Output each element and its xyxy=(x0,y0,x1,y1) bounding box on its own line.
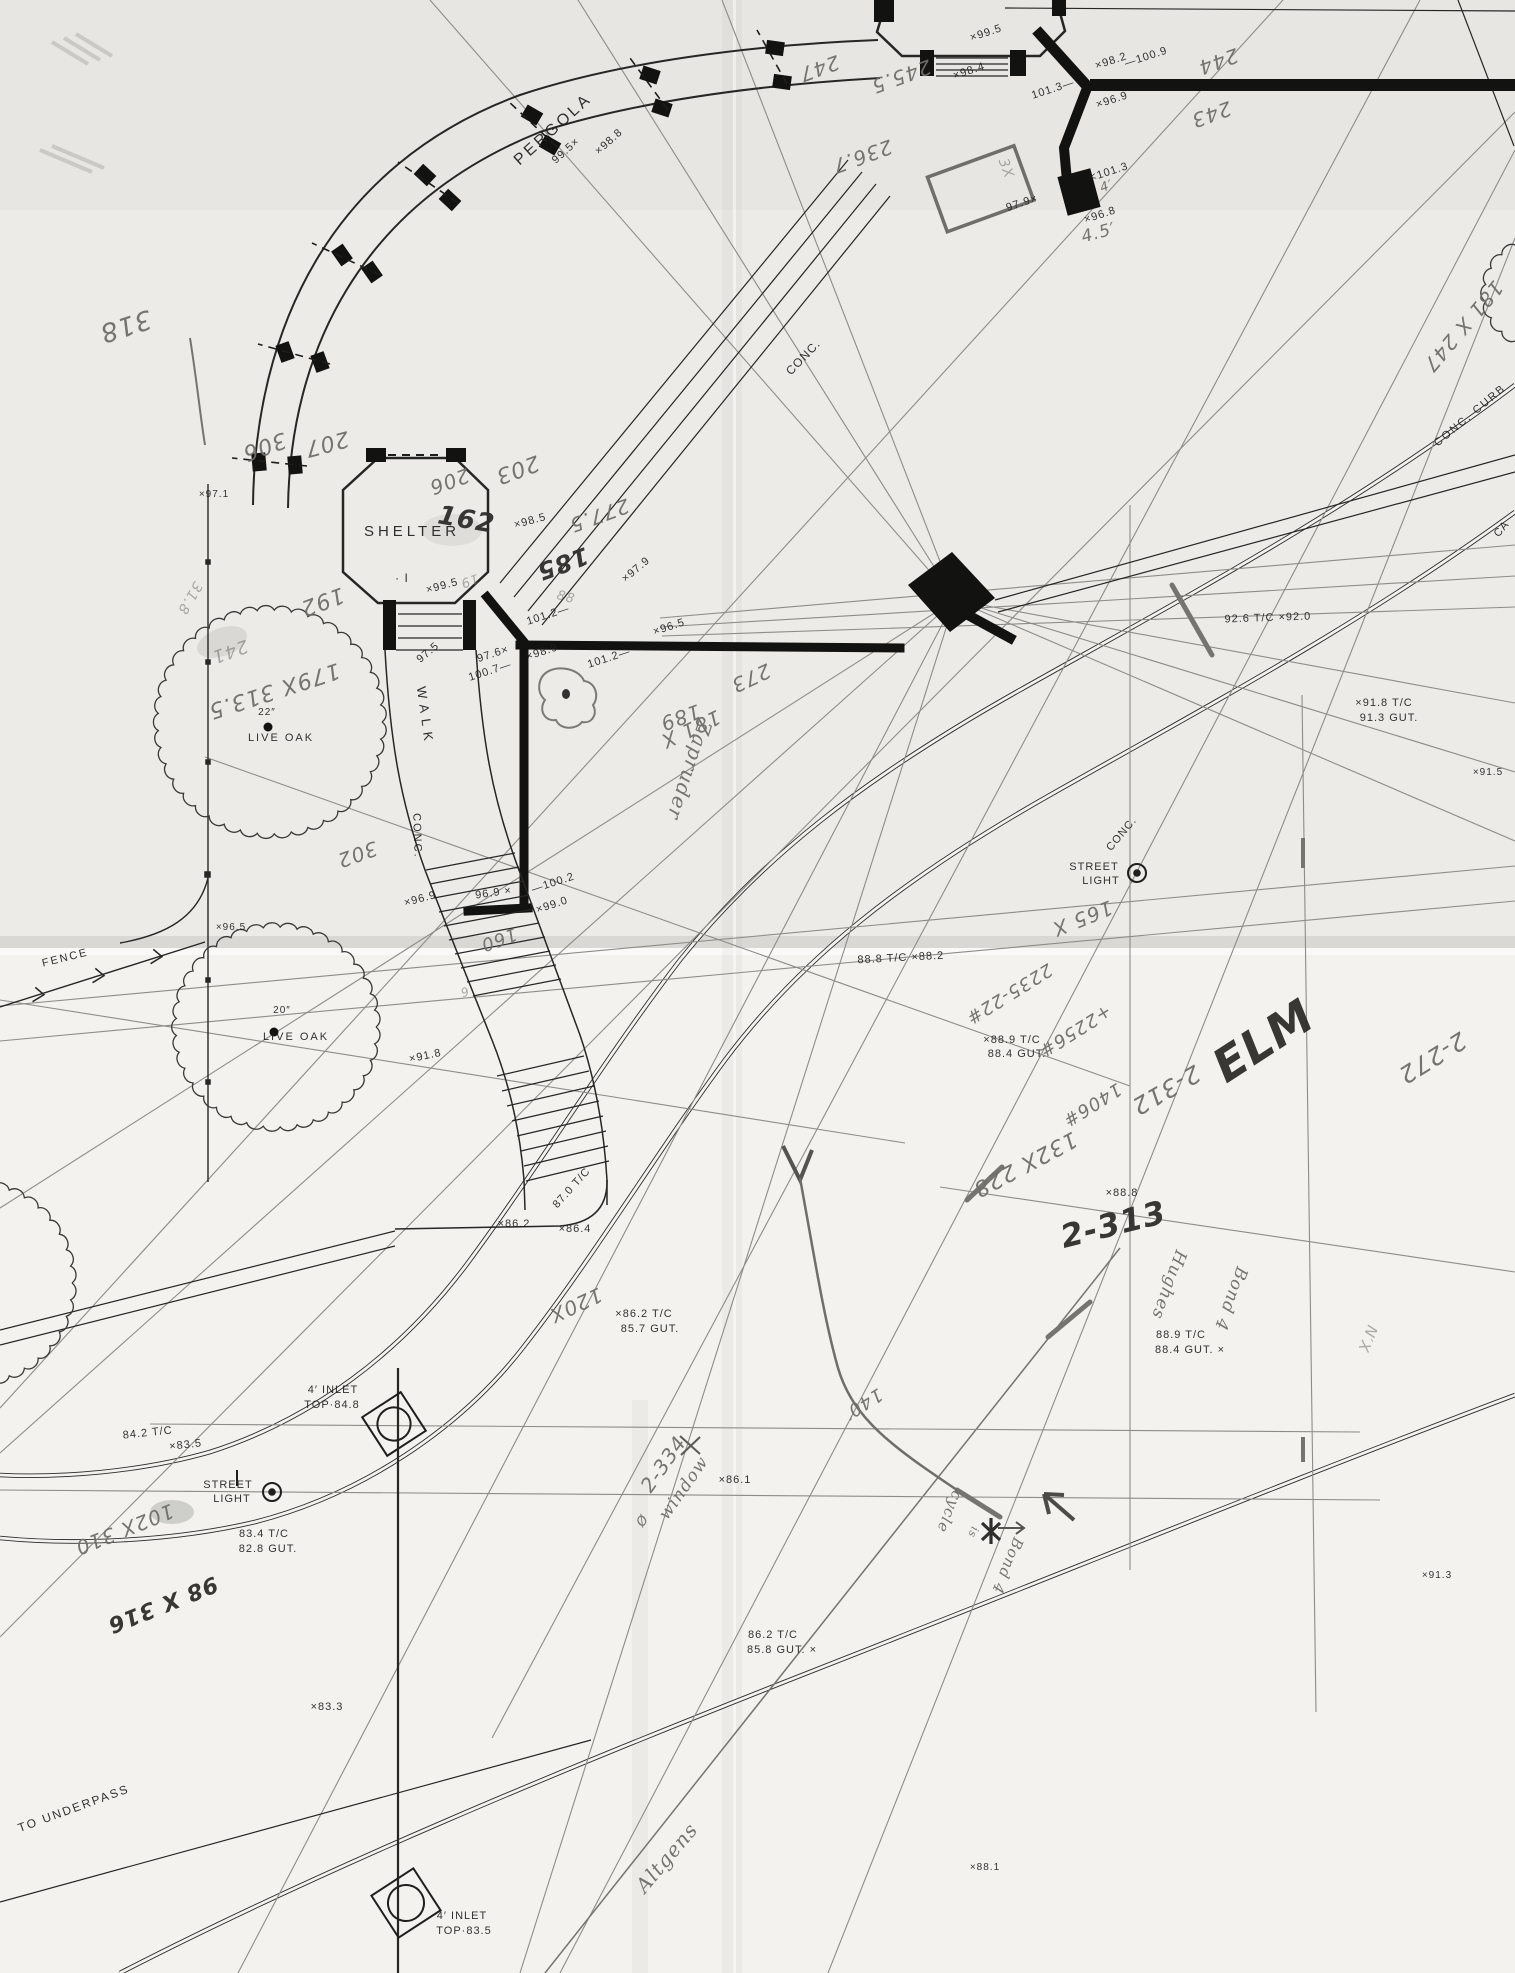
inlet-4ft-top-83-5-icon xyxy=(371,1868,440,1937)
hw-1406: 1406# xyxy=(1058,1078,1125,1131)
hw-98x-316: 98 X 316 xyxy=(104,1571,222,1638)
star-mark xyxy=(982,1518,1000,1544)
street-light-lower-icon-center xyxy=(268,1488,276,1496)
spot-88-8: ×88.8 xyxy=(1106,1187,1139,1199)
hw-2256: +2256# xyxy=(1035,1000,1116,1061)
grade-88-9-tc-b: 88.9 T/C xyxy=(1156,1329,1206,1341)
spot-91-3: ×91.3 xyxy=(1422,1570,1452,1581)
grade-85-7-gut: 85.7 GUT. xyxy=(621,1323,680,1335)
inlet2-line1: 4′ INLET xyxy=(437,1910,487,1922)
hw-nx: N′X xyxy=(1354,1323,1381,1356)
spot-86-4: ×86.4 xyxy=(559,1223,592,1235)
grade-88-9-tc-a: ×88.9 T/C xyxy=(983,1034,1040,1046)
streetlight2-line2: LIGHT xyxy=(213,1493,250,1505)
grade-91-3-gut: 91.3 GUT. xyxy=(1360,712,1419,724)
pencil-arrow-small xyxy=(998,1522,1024,1534)
tree1-name: LIVE OAK xyxy=(248,732,314,744)
hw-cycle: cycle xyxy=(933,1488,966,1535)
utility-symbols xyxy=(237,864,1146,1938)
shelter-benchmark: · I xyxy=(395,571,409,585)
hw-2-272: 2-272 xyxy=(1393,1026,1471,1089)
tree-partial-left-edge xyxy=(0,1179,76,1387)
hw-6: 6 xyxy=(458,984,471,1000)
live-oak-22in-trunk-dot xyxy=(264,723,273,732)
hw-hughes: Hughes xyxy=(1147,1246,1191,1322)
inlet1-line2: TOP·84.8 xyxy=(304,1399,360,1411)
hw-2-313: 2-313 xyxy=(1057,1193,1170,1256)
hw-2235-22: 2235-22# xyxy=(962,959,1056,1029)
street-light-elm-icon-center xyxy=(1133,869,1141,877)
hw-102x-310: 102X 310 xyxy=(72,1499,178,1560)
spot-83-3: ×83.3 xyxy=(311,1701,344,1713)
tree2-name: LIVE OAK xyxy=(263,1031,329,1043)
streetlight2-line1: STREET xyxy=(203,1479,252,1491)
grade-87-0: 87.0 T/C xyxy=(551,1165,593,1210)
grade-86-2-tc-b: 86.2 T/C xyxy=(748,1629,798,1641)
paper-creases xyxy=(0,0,1515,1973)
grade-86-2-tc: ×86.2 T/C xyxy=(615,1308,672,1320)
grade-83-5: ×83.5 xyxy=(169,1437,203,1452)
grade-91-8-tc: ×91.8 T/C xyxy=(1355,697,1412,709)
grade-84-2-tc: 84.2 T/C xyxy=(122,1424,173,1441)
tree2-size: 20″ xyxy=(273,1005,291,1016)
scanned-site-plan-sheet: PERGOLA99.5××98.8CONC.×99.5×98.4101.3—×9… xyxy=(0,0,1515,1973)
hw-bond4-a: Bond 4 xyxy=(1210,1263,1252,1334)
hw-120x: 120X xyxy=(545,1283,606,1328)
tree1-size: 22″ xyxy=(258,707,276,718)
spot-97-1: ×97.1 xyxy=(199,489,229,500)
grade-88-4-gut-b: 88.4 GUT. × xyxy=(1155,1344,1225,1356)
grade-88-4-gut-a: 88.4 GUT. xyxy=(988,1048,1047,1060)
pencil-arrow-down xyxy=(783,1146,957,1490)
spot-91-5: ×91.5 xyxy=(1473,767,1503,778)
label-conc-walk2: CONC. xyxy=(410,813,424,859)
grade-85-8-gut: 85.8 GUT. × xyxy=(747,1644,817,1656)
inlet1-line1: 4′ INLET xyxy=(308,1384,358,1396)
inlet2-line2: TOP·83.5 xyxy=(436,1925,492,1937)
spot-88-1: ×88.1 xyxy=(970,1862,1000,1873)
spot-96-5-fence: ×96.5 xyxy=(216,922,246,933)
spot-86-2: ×86.2 xyxy=(498,1218,531,1230)
hw-132x-228: 132X 228 xyxy=(969,1126,1081,1202)
grade-83-4-tc: 83.4 T/C xyxy=(239,1528,289,1540)
hw-is: is xyxy=(965,1525,981,1540)
streetlight1-line1: STREET xyxy=(1069,861,1118,873)
grade-82-8-gut: 82.8 GUT. xyxy=(239,1543,298,1555)
hw-2-312: 2-312 xyxy=(1127,1059,1206,1121)
streetlight1-line2: LIGHT xyxy=(1082,875,1119,887)
label-to-underpass: TO UNDERPASS xyxy=(16,1782,131,1835)
site-plan-drawing: PERGOLA99.5××98.8CONC.×99.5×98.4101.3—×9… xyxy=(0,0,1515,1973)
spot-86-1: ×86.1 xyxy=(719,1474,752,1486)
